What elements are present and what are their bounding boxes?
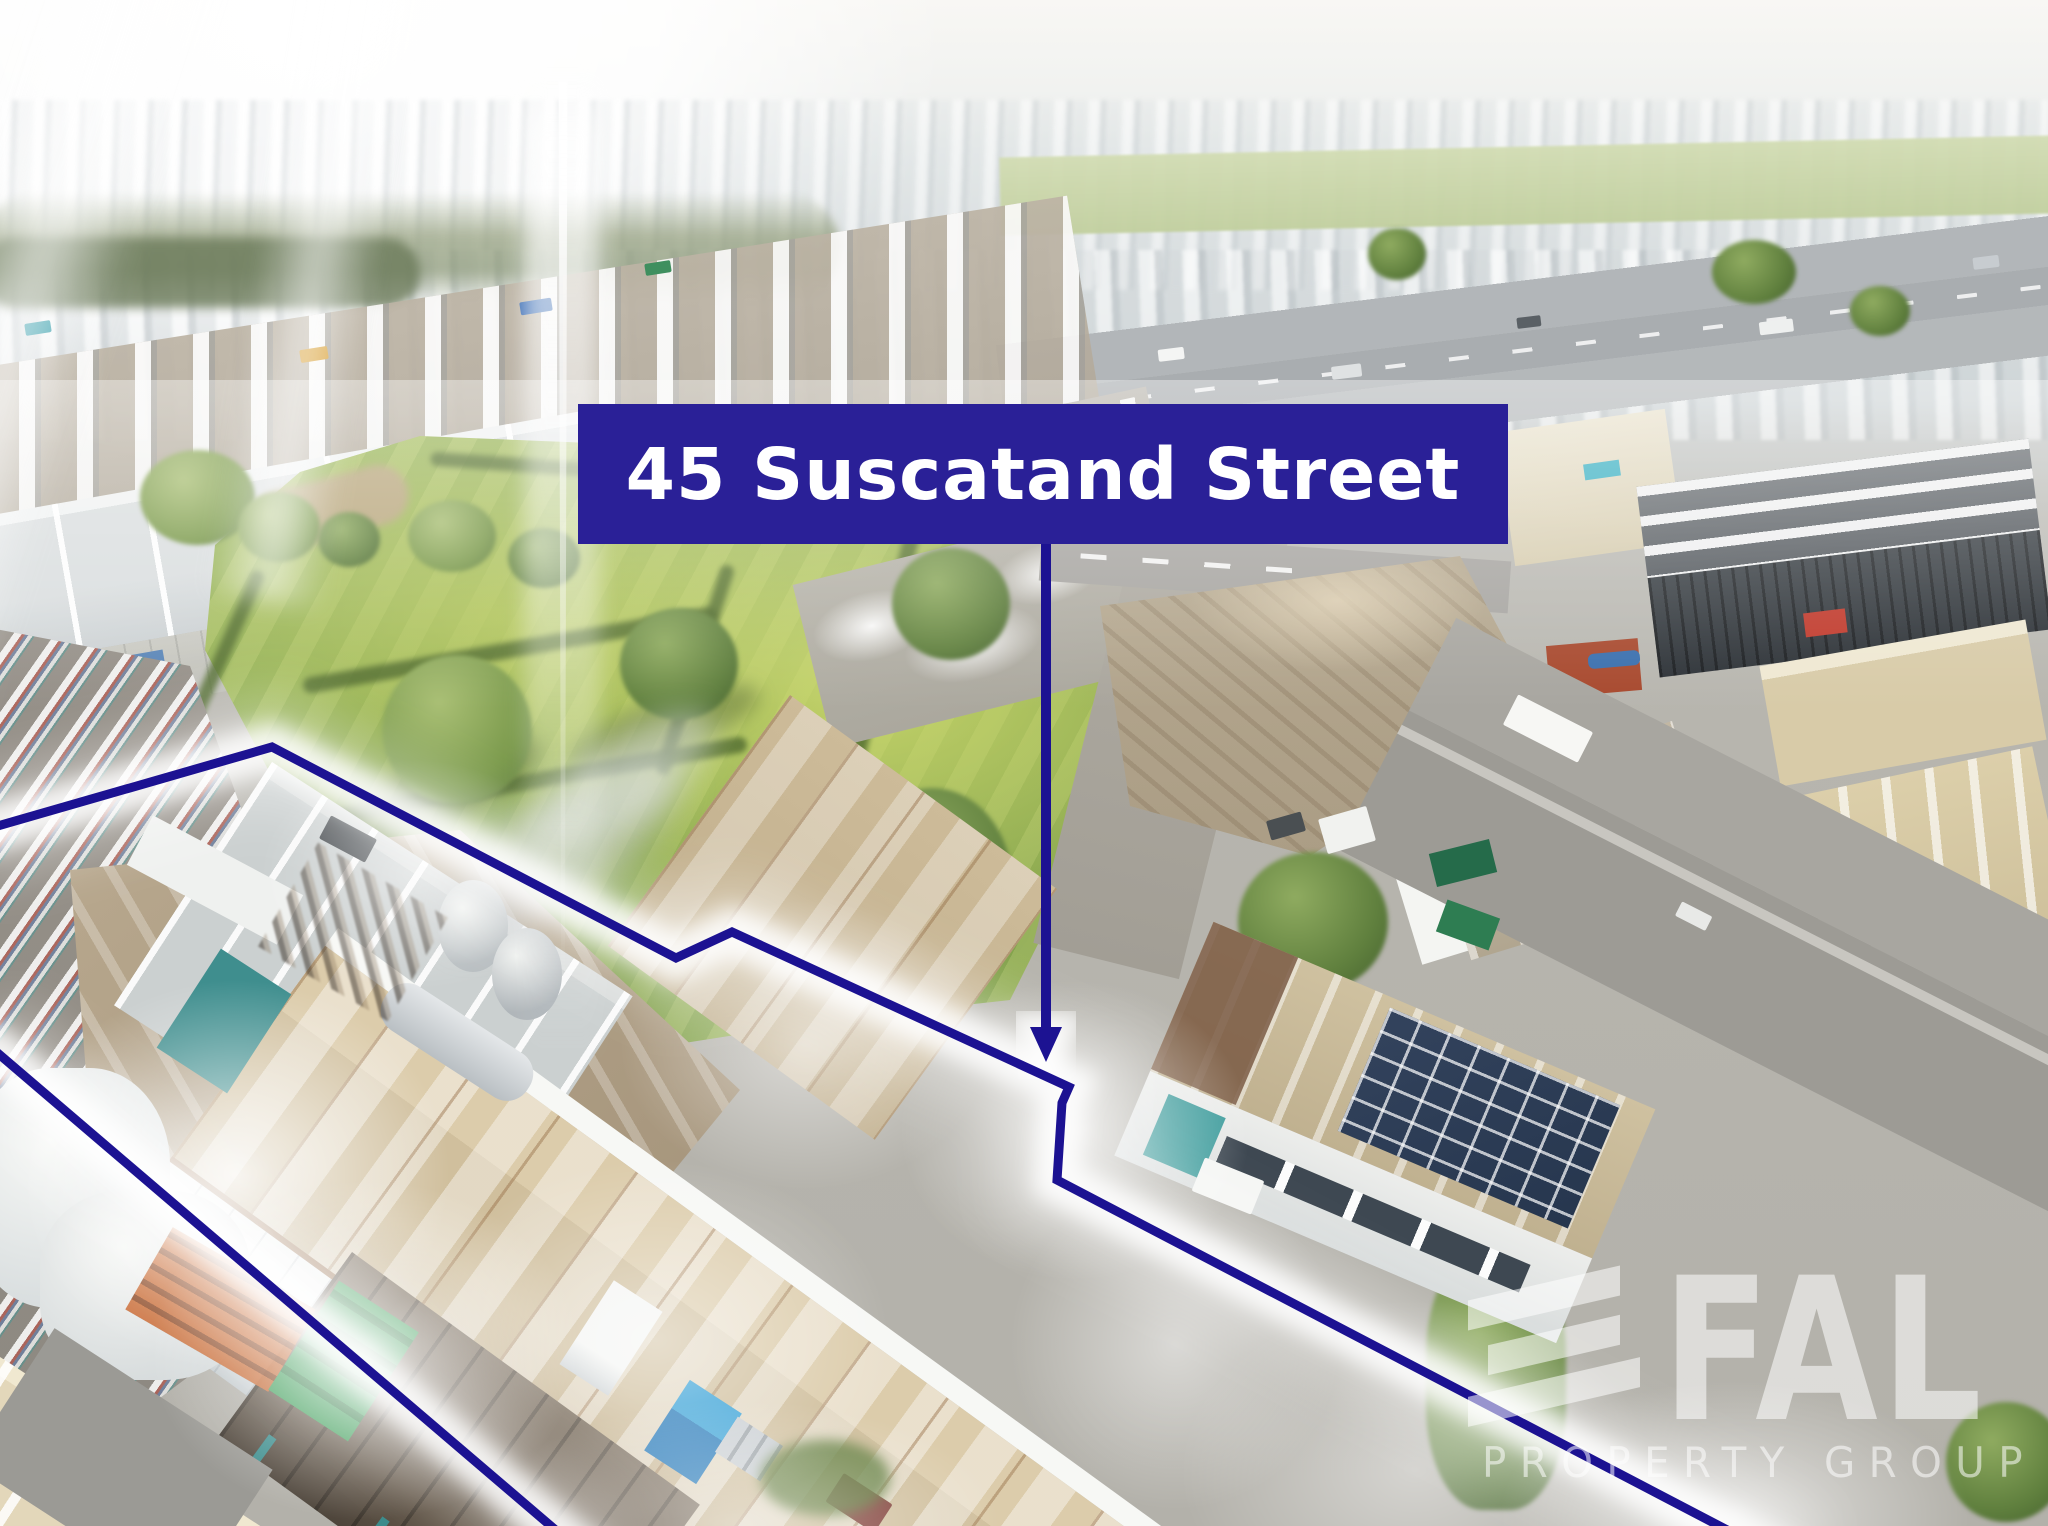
car — [1675, 901, 1713, 931]
tree — [620, 608, 738, 720]
vehicle — [1516, 315, 1541, 329]
road-markings — [1080, 553, 1300, 573]
tree-large — [382, 655, 532, 805]
truck-white — [1503, 694, 1593, 762]
teal-post — [362, 1516, 389, 1526]
vehicle — [1972, 255, 1999, 270]
tree — [892, 548, 1010, 660]
address-banner: 45 Suscatand Street — [578, 404, 1508, 544]
vehicle — [1331, 363, 1362, 380]
vehicle — [1158, 347, 1185, 362]
weeds — [760, 1440, 890, 1516]
aerial-property-photo: 45 Suscatand Street FAL PROPERTY GROUP — [0, 0, 2048, 1526]
vehicle — [1759, 318, 1794, 335]
address-banner-label: 45 Suscatand Street — [626, 433, 1461, 516]
tree — [1368, 228, 1426, 280]
tree — [408, 500, 496, 572]
tree — [1712, 240, 1796, 304]
aerial-photo — [0, 0, 2048, 1526]
red-entry — [1803, 608, 1848, 637]
tree — [1850, 286, 1910, 336]
